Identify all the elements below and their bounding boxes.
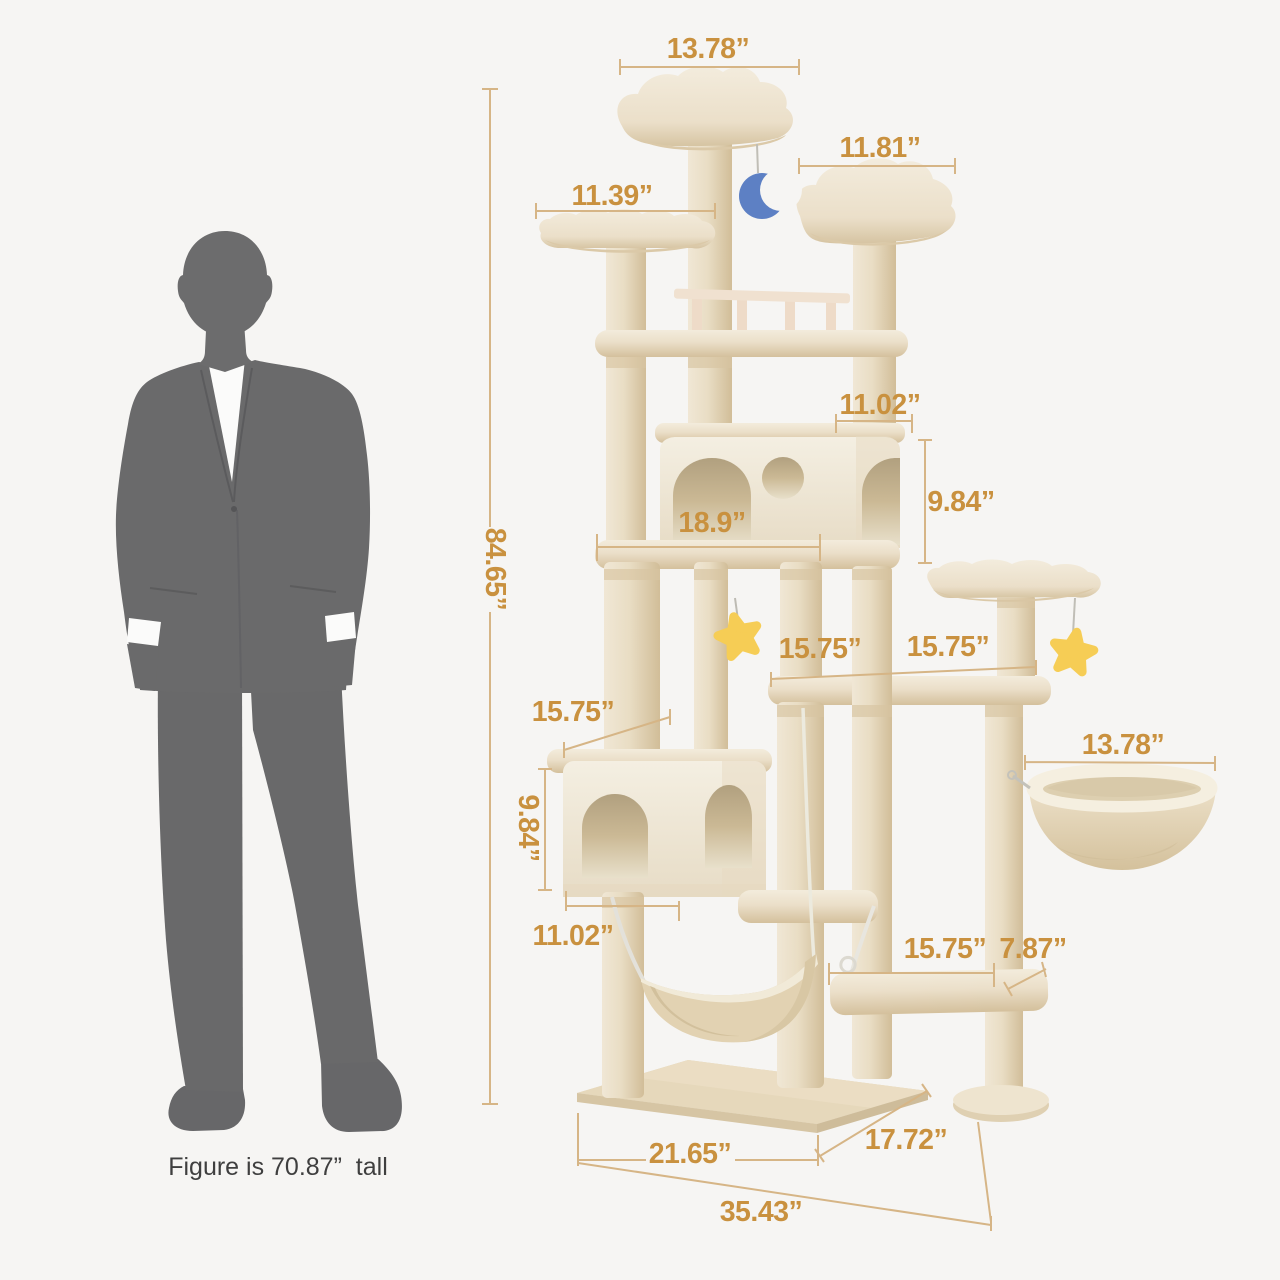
svg-text:11.81”: 11.81”	[840, 132, 921, 164]
svg-text:Figure is 70.87” tall: Figure is 70.87” tall	[168, 1153, 388, 1181]
svg-text:11.39”: 11.39”	[572, 180, 653, 212]
svg-text:21.65”: 21.65”	[649, 1138, 732, 1170]
svg-text:84.65”: 84.65”	[479, 528, 511, 611]
svg-text:13.78”: 13.78”	[1082, 729, 1165, 761]
svg-text:9.84”: 9.84”	[927, 486, 994, 518]
svg-text:13.78”: 13.78”	[667, 33, 750, 65]
svg-text:15.75”: 15.75”	[907, 631, 990, 663]
svg-text:35.43”: 35.43”	[720, 1196, 803, 1228]
svg-text:7.87”: 7.87”	[999, 933, 1066, 965]
svg-text:18.9”: 18.9”	[678, 507, 745, 539]
svg-text:11.02”: 11.02”	[840, 389, 921, 421]
svg-text:15.75”: 15.75”	[532, 696, 615, 728]
svg-text:15.75”: 15.75”	[779, 633, 862, 665]
svg-text:15.75”: 15.75”	[904, 933, 987, 965]
svg-text:17.72”: 17.72”	[865, 1124, 948, 1156]
svg-text:11.02”: 11.02”	[533, 920, 614, 952]
svg-text:9.84”: 9.84”	[512, 794, 544, 861]
